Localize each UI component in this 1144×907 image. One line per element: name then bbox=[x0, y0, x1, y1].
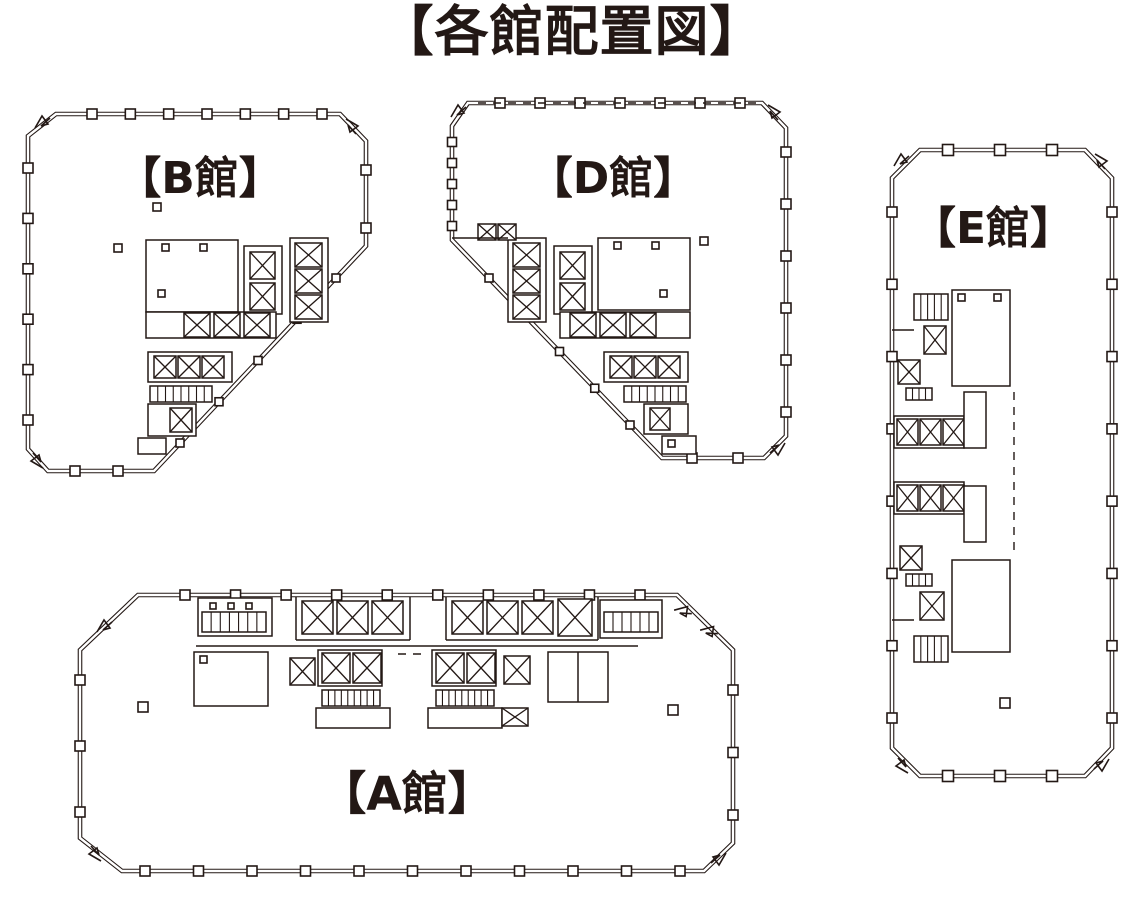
column-mark bbox=[433, 590, 443, 600]
column-mark bbox=[125, 109, 135, 119]
column-mark bbox=[70, 466, 80, 476]
stair-hatch bbox=[604, 612, 658, 632]
elevator-shaft bbox=[295, 243, 322, 267]
column-mark bbox=[781, 199, 791, 209]
elevator-shaft bbox=[560, 252, 585, 279]
column-mark bbox=[568, 866, 578, 876]
column-mark bbox=[408, 866, 418, 876]
stair-hatch bbox=[150, 386, 212, 402]
elevator-shaft bbox=[920, 419, 941, 445]
elevator-shaft bbox=[244, 313, 270, 337]
stair-hatch bbox=[906, 388, 932, 400]
column-mark bbox=[958, 294, 965, 301]
stair-hatch bbox=[322, 690, 380, 706]
elevator-shaft bbox=[452, 601, 483, 634]
column-mark bbox=[23, 213, 33, 223]
column-mark bbox=[332, 590, 342, 600]
column-mark bbox=[215, 398, 223, 406]
floor-plan-canvas: 【B館】【D館】【E館】【A館】 bbox=[0, 0, 1144, 907]
column-mark bbox=[180, 590, 190, 600]
column-mark bbox=[164, 109, 174, 119]
column-mark bbox=[728, 748, 738, 758]
column-mark bbox=[23, 163, 33, 173]
column-mark bbox=[138, 702, 148, 712]
stair-box bbox=[322, 690, 380, 706]
column-mark bbox=[943, 145, 954, 156]
elevator-shaft bbox=[154, 356, 176, 378]
column-mark bbox=[158, 290, 165, 297]
elevator-shaft bbox=[924, 326, 946, 354]
column-mark bbox=[887, 641, 897, 651]
elevator-shaft bbox=[600, 313, 626, 337]
column-mark bbox=[113, 466, 123, 476]
elevator-shaft bbox=[170, 408, 192, 432]
core-room bbox=[428, 708, 502, 728]
column-mark bbox=[382, 590, 392, 600]
column-mark bbox=[228, 603, 234, 609]
column-mark bbox=[1107, 352, 1117, 362]
elevator-shaft bbox=[504, 656, 530, 684]
elevator-shaft bbox=[353, 653, 381, 683]
elevator-shaft bbox=[337, 601, 368, 634]
column-mark bbox=[1047, 771, 1058, 782]
column-mark bbox=[87, 109, 97, 119]
stair-hatch bbox=[624, 386, 686, 402]
column-mark bbox=[140, 866, 150, 876]
core-room bbox=[952, 290, 1010, 386]
page: { "title": "【各館配置図】", "diagram": { "canv… bbox=[0, 0, 1144, 907]
column-mark bbox=[483, 590, 493, 600]
column-mark bbox=[281, 590, 291, 600]
column-mark bbox=[461, 866, 471, 876]
elevator-shaft bbox=[634, 356, 656, 378]
elevator-shaft bbox=[650, 408, 670, 430]
column-mark bbox=[247, 866, 257, 876]
elevator-shaft bbox=[202, 356, 224, 378]
column-mark bbox=[153, 203, 161, 211]
column-mark bbox=[781, 407, 791, 417]
column-mark bbox=[361, 165, 371, 175]
column-mark bbox=[194, 866, 204, 876]
elevator-shaft bbox=[513, 269, 540, 293]
column-mark bbox=[1107, 568, 1117, 578]
column-mark bbox=[361, 223, 371, 233]
stair-box bbox=[436, 690, 494, 706]
column-mark bbox=[887, 568, 897, 578]
column-mark bbox=[887, 279, 897, 289]
elevator-shaft bbox=[570, 313, 596, 337]
column-mark bbox=[332, 274, 340, 282]
column-mark bbox=[887, 713, 897, 723]
elevator-shaft bbox=[630, 313, 656, 337]
column-mark bbox=[887, 352, 897, 362]
column-mark bbox=[448, 222, 457, 231]
elevator-shaft bbox=[372, 601, 403, 634]
column-mark bbox=[1107, 279, 1117, 289]
elevator-shaft bbox=[436, 653, 464, 683]
elevator-shaft bbox=[214, 313, 240, 337]
column-mark bbox=[75, 807, 85, 817]
column-mark bbox=[202, 109, 212, 119]
elevator-shaft bbox=[943, 419, 964, 445]
column-mark bbox=[781, 303, 791, 313]
elevator-shaft bbox=[295, 269, 322, 293]
elevator-shaft bbox=[295, 295, 322, 319]
elevator-shaft bbox=[502, 708, 528, 726]
column-mark bbox=[200, 244, 207, 251]
building-b-label: 【B館】 bbox=[117, 153, 283, 204]
elevator-shaft bbox=[302, 601, 333, 634]
column-mark bbox=[162, 244, 169, 251]
building-a-label: 【A館】 bbox=[320, 767, 494, 821]
elevator-shaft bbox=[184, 313, 210, 337]
column-mark bbox=[781, 251, 791, 261]
elevator-shaft bbox=[467, 653, 495, 683]
elevator-shaft bbox=[513, 295, 540, 319]
elevator-shaft bbox=[898, 360, 920, 384]
core-room bbox=[964, 392, 986, 448]
column-mark bbox=[995, 145, 1006, 156]
column-mark bbox=[943, 771, 954, 782]
elevator-shaft bbox=[178, 356, 200, 378]
elevator-shaft bbox=[920, 485, 941, 511]
column-mark bbox=[240, 109, 250, 119]
column-mark bbox=[1107, 641, 1117, 651]
column-mark bbox=[626, 421, 634, 429]
column-mark bbox=[591, 384, 599, 392]
stair-box bbox=[914, 636, 948, 662]
column-mark bbox=[176, 439, 184, 447]
column-mark bbox=[675, 866, 685, 876]
core-room bbox=[964, 486, 986, 542]
elevator-shaft bbox=[250, 252, 275, 279]
elevator-shaft bbox=[897, 419, 918, 445]
column-mark bbox=[728, 810, 738, 820]
column-mark bbox=[614, 242, 621, 249]
stair-hatch bbox=[202, 612, 266, 632]
column-mark bbox=[448, 201, 457, 210]
column-mark bbox=[1107, 496, 1117, 506]
column-mark bbox=[781, 355, 791, 365]
column-mark bbox=[1107, 424, 1117, 434]
column-mark bbox=[534, 590, 544, 600]
column-mark bbox=[1047, 145, 1058, 156]
column-mark bbox=[485, 274, 493, 282]
column-mark bbox=[448, 138, 457, 147]
column-mark bbox=[23, 415, 33, 425]
elevator-shaft bbox=[522, 601, 553, 634]
elevator-shaft bbox=[290, 658, 315, 685]
stair-hatch bbox=[436, 690, 494, 706]
building-e-label: 【E館】 bbox=[912, 203, 1074, 254]
column-mark bbox=[668, 440, 675, 447]
column-mark bbox=[652, 242, 659, 249]
elevator-shaft bbox=[920, 592, 944, 620]
elevator-shaft bbox=[900, 546, 922, 570]
elevator-shaft bbox=[322, 653, 350, 683]
elevator-shaft bbox=[487, 601, 518, 634]
column-mark bbox=[23, 365, 33, 375]
column-mark bbox=[1000, 698, 1010, 708]
core-room bbox=[146, 240, 238, 312]
column-mark bbox=[994, 294, 1001, 301]
column-mark bbox=[556, 348, 564, 356]
core-room bbox=[138, 438, 166, 454]
column-mark bbox=[515, 866, 525, 876]
stair-hatch bbox=[914, 636, 948, 662]
column-mark bbox=[668, 705, 678, 715]
column-mark bbox=[700, 237, 708, 245]
column-mark bbox=[75, 675, 85, 685]
column-mark bbox=[301, 866, 311, 876]
stair-box bbox=[914, 294, 948, 320]
column-mark bbox=[887, 207, 897, 217]
column-mark bbox=[254, 357, 262, 365]
building-d-plan: 【D館】 bbox=[448, 98, 792, 463]
core-room bbox=[316, 708, 390, 728]
column-mark bbox=[728, 685, 738, 695]
elevator-shaft bbox=[943, 485, 964, 511]
core-room bbox=[598, 238, 690, 310]
column-mark bbox=[622, 866, 632, 876]
column-mark bbox=[210, 603, 216, 609]
column-mark bbox=[317, 109, 327, 119]
column-mark bbox=[660, 290, 667, 297]
stair-hatch bbox=[906, 574, 932, 586]
building-b-plan: 【B館】 bbox=[23, 109, 371, 476]
elevator-shaft bbox=[610, 356, 632, 378]
building-e-plan: 【E館】 bbox=[887, 145, 1117, 782]
column-mark bbox=[75, 741, 85, 751]
elevator-shaft bbox=[560, 283, 585, 310]
column-mark bbox=[448, 180, 457, 189]
column-mark bbox=[448, 159, 457, 168]
column-mark bbox=[246, 603, 252, 609]
elevator-shaft bbox=[658, 356, 680, 378]
building-a-plan: 【A館】 bbox=[75, 590, 738, 876]
building-d-label: 【D館】 bbox=[529, 153, 698, 204]
column-mark bbox=[354, 866, 364, 876]
column-mark bbox=[1107, 713, 1117, 723]
column-mark bbox=[114, 244, 122, 252]
elevator-shaft bbox=[250, 283, 275, 310]
column-mark bbox=[23, 314, 33, 324]
column-mark bbox=[1107, 207, 1117, 217]
core-room bbox=[662, 436, 696, 454]
stair-hatch bbox=[914, 294, 948, 320]
column-mark bbox=[781, 147, 791, 157]
column-mark bbox=[200, 656, 207, 663]
column-mark bbox=[23, 264, 33, 274]
column-mark bbox=[635, 590, 645, 600]
core-room bbox=[952, 560, 1010, 652]
column-mark bbox=[279, 109, 289, 119]
elevator-shaft bbox=[897, 485, 918, 511]
column-mark bbox=[733, 453, 743, 463]
column-mark bbox=[995, 771, 1006, 782]
elevator-shaft bbox=[513, 243, 540, 267]
elevator-shaft bbox=[558, 599, 592, 636]
